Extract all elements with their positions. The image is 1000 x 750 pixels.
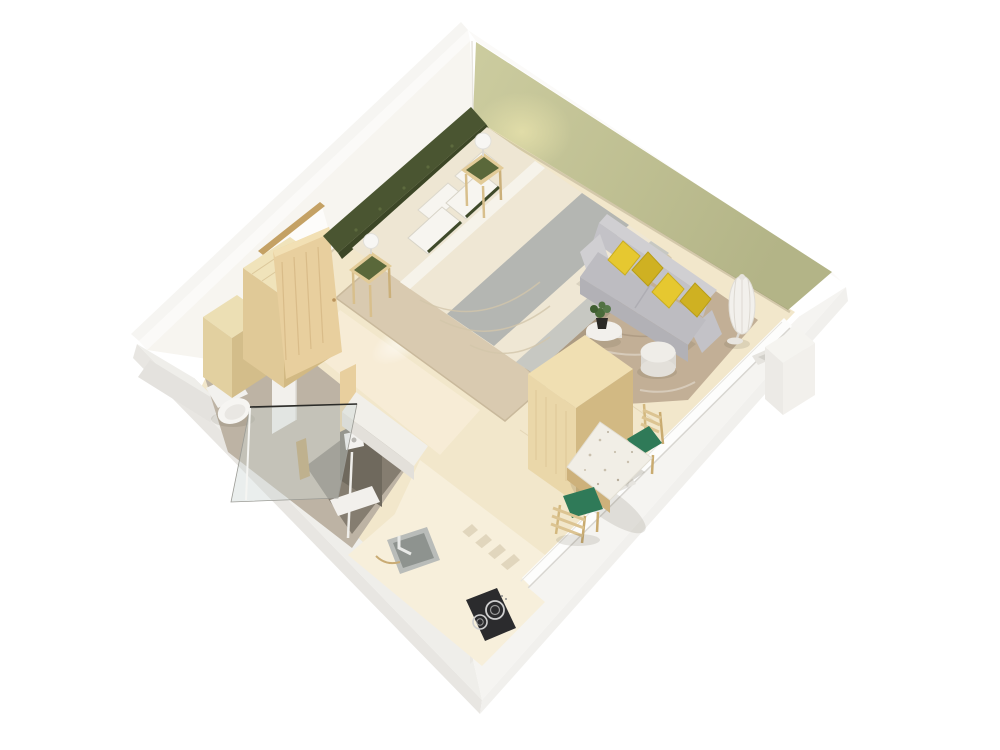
- floorplan-render-canvas: [0, 0, 1000, 750]
- table-lamp-upper: [475, 133, 491, 149]
- apartment-3d-floorplan: [0, 0, 1000, 750]
- glass-partition: [231, 404, 357, 502]
- table-lamp-lower: [364, 234, 379, 249]
- ottoman-pouf: [637, 342, 677, 380]
- door-handle: [332, 298, 336, 302]
- wall-corner-line: [472, 41, 473, 118]
